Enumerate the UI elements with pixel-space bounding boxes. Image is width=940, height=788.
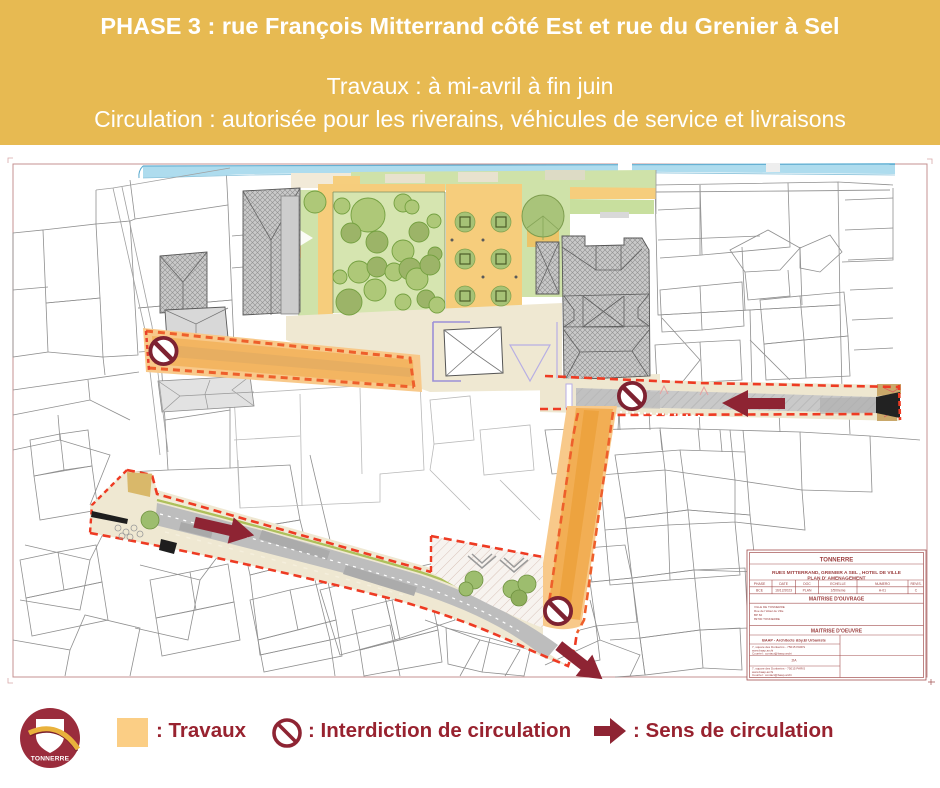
svg-text:TONNERRE: TONNERRE <box>31 756 70 763</box>
